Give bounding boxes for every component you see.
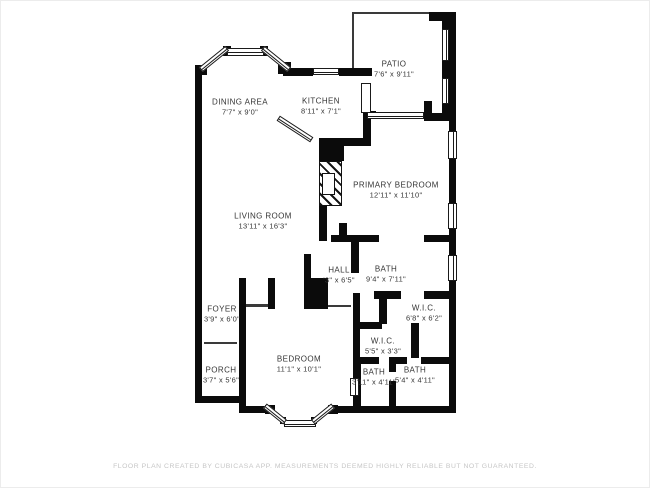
counter-pass-through [277,116,314,143]
room-dims: 5'4" x 4'11" [395,376,435,386]
room-dims: 5'5" x 3'3" [365,347,401,357]
fireplace-block [319,138,344,161]
wall [339,68,372,76]
wall [449,159,456,203]
window [442,29,449,61]
room-label-bedroom: BEDROOM 11'1" x 10'1" [277,354,321,375]
room-name: HALL [323,265,355,276]
room-label-wic-small: W.I.C. 5'5" x 3'3" [365,336,401,357]
bay-window [263,403,287,424]
window [442,78,449,104]
window [448,255,457,281]
bay-window [199,46,229,72]
room-label-bath: BATH 9'4" x 7'11" [366,264,406,285]
room-name: DINING AREA [212,97,268,108]
room-name: LIVING ROOM [234,211,292,222]
wall [379,291,387,324]
room-label-kitchen: KITCHEN 8'11" x 7'1" [301,96,341,117]
room-name: BATH [366,264,406,275]
room-name: PATIO [374,59,414,70]
wall [353,406,456,413]
room-label-hall: HALL '3" x 6'5" [323,265,355,286]
wall [195,68,202,403]
wall [424,101,432,113]
wall [424,291,451,299]
patio-screen [352,12,354,69]
floor-plan: PATIO 7'6" x 9'11" DINING AREA 7'7" x 9'… [0,0,650,488]
room-name: PRIMARY BEDROOM [353,180,439,191]
wall [449,121,456,131]
room-label-foyer: FOYER 3'9" x 6'0" [204,304,240,325]
wall [449,12,456,121]
wall [411,323,419,358]
room-dims: 3'11" x 4'11" [352,378,396,388]
room-name: BEDROOM [277,354,321,365]
room-label-living-room: LIVING ROOM 13'11" x 16'3" [234,211,292,232]
wall [389,357,407,364]
porch-divider [204,342,237,344]
room-label-dining-area: DINING AREA 7'7" x 9'0" [212,97,268,118]
room-dims: 8'11" x 7'1" [301,107,341,117]
room-dims: 12'11" x 11'10" [353,191,439,201]
room-name: FOYER [204,304,240,315]
wall [239,278,246,413]
wall [353,357,379,364]
window [313,68,339,75]
sliding-door [367,112,424,119]
patio-screen [353,12,429,14]
room-name: W.I.C. [406,303,442,314]
wall [319,206,327,241]
wall [449,281,456,413]
room-dims: '3" x 6'5" [323,276,355,286]
window [448,203,457,229]
wall [268,278,275,309]
bay-window [227,48,264,56]
room-name: BATH [395,365,435,376]
room-name: KITCHEN [301,96,341,107]
room-dims: 7'7" x 9'0" [212,108,268,118]
room-dims: 3'9" x 6'0" [204,315,240,325]
room-name: BATH [352,367,396,378]
door-leaf [361,83,371,113]
room-label-porch: PORCH 3'7" x 5'6" [203,365,239,386]
closet-back [246,304,268,307]
window [448,131,457,159]
room-label-bath-left: BATH 3'11" x 4'11" [352,367,396,388]
bay-window [261,46,291,72]
wall [424,113,456,121]
room-label-bath-right: BATH 5'4" x 4'11" [395,365,435,386]
wall [424,235,456,242]
room-dims: 6'8" x 6'2" [406,314,442,324]
wall [442,61,449,78]
room-name: W.I.C. [365,336,401,347]
wall [343,138,371,146]
hall-threshold [328,305,351,307]
room-dims: 3'7" x 5'6" [203,376,239,386]
wall [421,357,456,364]
room-dims: 7'6" x 9'11" [374,70,414,80]
room-name: PORCH [203,365,239,376]
room-dims: 11'1" x 10'1" [277,365,321,375]
bay-window [311,403,335,424]
wall [449,229,456,255]
room-dims: 9'4" x 7'11" [366,275,406,285]
room-label-wic-large: W.I.C. 6'8" x 6'2" [406,303,442,324]
wall [442,12,449,29]
fireplace-box [322,173,335,195]
room-label-primary-bedroom: PRIMARY BEDROOM 12'11" x 11'10" [353,180,439,201]
wall [195,396,241,403]
room-label-patio: PATIO 7'6" x 9'11" [374,59,414,80]
wall [304,254,311,280]
room-dims: 13'11" x 16'3" [234,222,292,232]
wall [356,322,382,329]
footer-disclaimer: FLOOR PLAN CREATED BY CUBICASA APP. MEAS… [1,463,649,470]
